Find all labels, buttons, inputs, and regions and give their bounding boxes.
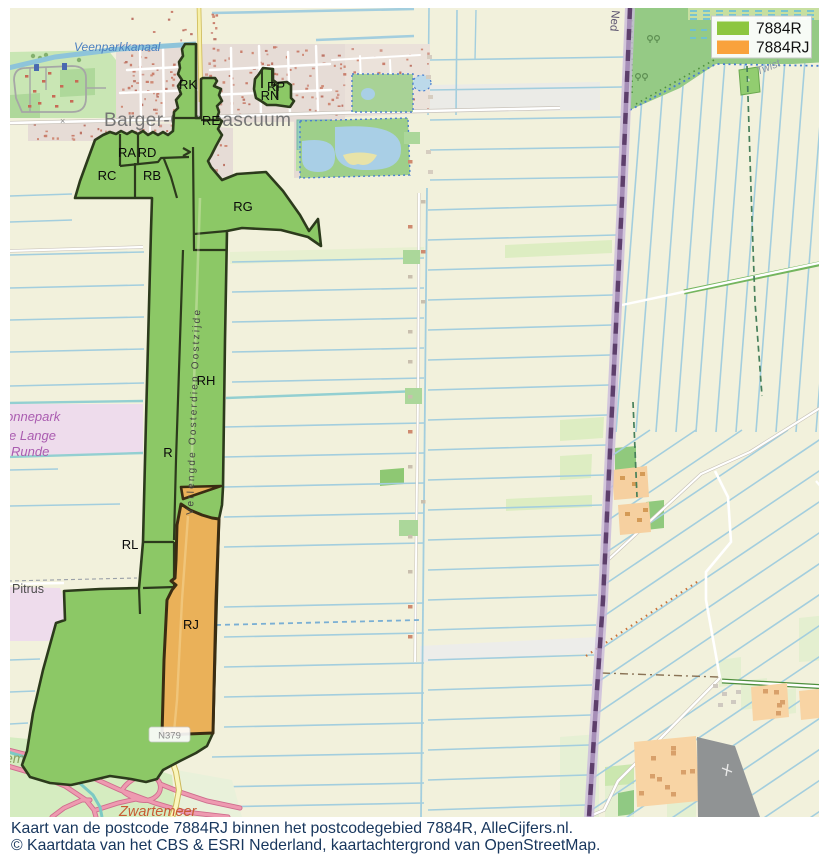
svg-text:7884RJ: 7884RJ <box>756 40 809 57</box>
svg-text:RN: RN <box>261 88 280 103</box>
svg-text:RJ: RJ <box>183 617 199 632</box>
svg-text:RE: RE <box>202 113 220 128</box>
svg-text:RH: RH <box>197 373 216 388</box>
svg-text:RG: RG <box>233 199 253 214</box>
svg-text:RC: RC <box>98 168 117 183</box>
svg-text:e Lange: e Lange <box>9 428 56 443</box>
svg-text:N379: N379 <box>158 731 181 742</box>
svg-text:Ned: Ned <box>607 10 621 32</box>
svg-text:R: R <box>163 445 172 460</box>
svg-text:RA: RA <box>118 145 136 160</box>
svg-text:RL: RL <box>122 537 139 552</box>
svg-text:7884R: 7884R <box>756 21 802 38</box>
svg-text:RD: RD <box>138 145 157 160</box>
svg-text:×: × <box>60 116 65 126</box>
svg-text:RK: RK <box>179 77 197 92</box>
svg-text:Kaart van de postcode 7884RJ b: Kaart van de postcode 7884RJ binnen het … <box>11 820 573 837</box>
svg-text:onnepark: onnepark <box>6 409 62 424</box>
svg-text:Veenparkkanaal: Veenparkkanaal <box>74 40 161 54</box>
svg-text:Runde: Runde <box>11 444 49 459</box>
svg-text:© Kaartdata van het CBS & ESRI: © Kaartdata van het CBS & ESRI Nederland… <box>11 837 600 854</box>
svg-text:RB: RB <box>143 168 161 183</box>
svg-text:Pitrus: Pitrus <box>12 582 44 596</box>
